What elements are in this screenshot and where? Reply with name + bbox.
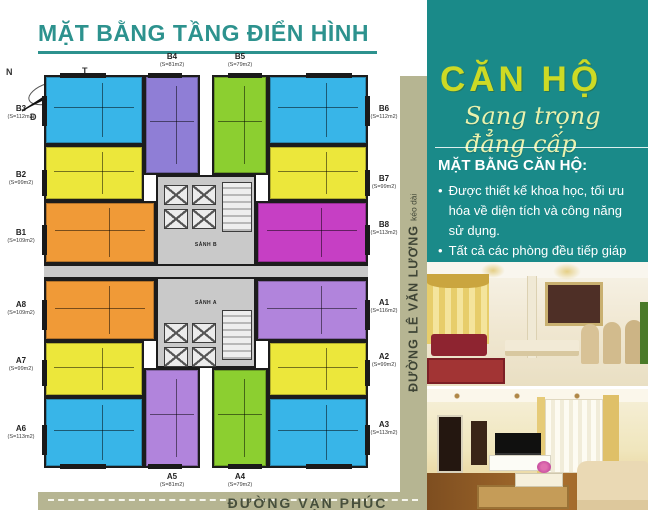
balcony-block [42, 225, 47, 255]
doorway [471, 421, 487, 465]
unit-B7 [268, 145, 368, 201]
red-rug [427, 358, 505, 384]
balcony-block [42, 300, 47, 330]
unit-label-B7: B7(S=99m2) [368, 174, 400, 191]
elevator-icon [192, 347, 216, 367]
unit-label-A2: A2(S=99m2) [368, 352, 400, 369]
elevator-icon [192, 185, 216, 205]
unit-label-B1: B1(S=109m2) [0, 228, 42, 245]
unit-A2 [268, 341, 368, 397]
unit-A8 [44, 279, 156, 341]
balcony-block [306, 73, 352, 78]
elevator-icon [164, 209, 188, 229]
balcony-block [60, 464, 106, 469]
balcony-block [42, 360, 47, 386]
unit-A3 [268, 397, 368, 468]
chandelier-icon [553, 263, 581, 280]
balcony-block [228, 464, 262, 469]
unit-label-B5: B5(S=79m2) [212, 52, 268, 69]
bullet-icon: • [438, 181, 443, 241]
panel-heading: CĂN HỘ [440, 60, 602, 100]
balcony-block [306, 464, 352, 469]
photo-dining-room [427, 262, 648, 386]
sofa [577, 461, 648, 510]
unit-label-B4: B4(S=81m2) [144, 52, 200, 69]
unit-B6 [268, 75, 368, 145]
unit-A5 [144, 368, 200, 468]
rug [477, 485, 569, 509]
lobby-b-label: SẢNH B [156, 242, 256, 248]
unit-label-B2: B2(S=99m2) [0, 170, 42, 187]
framed-artwork [545, 282, 603, 326]
unit-label-B6: B6(S=112m2) [368, 104, 400, 121]
plant [640, 302, 648, 364]
panel-tagline: Sang trọng đẳng cấp [465, 102, 648, 158]
unit-A7 [44, 341, 144, 397]
unit-label-A7: A7(S=99m2) [0, 356, 42, 373]
unit-A4 [212, 368, 268, 468]
svg-text:N: N [6, 67, 13, 77]
brochure-page: MẶT BẰNG TẦNG ĐIỂN HÌNH N T Đ B SẢNH B S… [0, 0, 648, 510]
balcony-block [148, 464, 182, 469]
unit-label-B8: B8(S=113m2) [368, 220, 400, 237]
unit-A6 [44, 397, 144, 468]
dining-table [505, 340, 579, 356]
panel-subheading: MẶT BẰNG CĂN HỘ: [438, 157, 587, 174]
balcony-block [42, 425, 47, 455]
unit-B8 [256, 201, 368, 264]
street-le-van-luong: ĐƯỜNG LÊ VĂN LƯƠNG kéo dài [400, 76, 427, 510]
doorway [437, 415, 463, 473]
curtain-valance [427, 274, 489, 288]
unit-B5 [212, 75, 268, 175]
coffee-table [515, 473, 563, 487]
unit-label-A6: A6(S=113m2) [0, 424, 42, 441]
unit-label-B3: B3(S=112m2) [0, 104, 42, 121]
balcony-block [228, 73, 262, 78]
stairs-icon [222, 182, 252, 232]
elevator-icon [164, 347, 188, 367]
bullet-text: Được thiết kế khoa học, tối ưu hóa về di… [449, 181, 640, 241]
unit-B4 [144, 75, 200, 175]
balcony-block [42, 170, 47, 196]
dining-chair [581, 324, 599, 364]
unit-B2 [44, 145, 144, 201]
balcony-block [60, 73, 106, 78]
elevator-icon [192, 323, 216, 343]
page-title: MẶT BẰNG TẦNG ĐIỂN HÌNH [38, 20, 377, 54]
unit-label-A1: A1(S=116m2) [368, 298, 400, 315]
tv-screen [495, 433, 541, 455]
lobby-a-label: SẢNH A [156, 300, 256, 306]
photo-living-room [427, 389, 648, 510]
flowers [537, 461, 551, 473]
corridor [44, 264, 368, 279]
unit-label-A8: A8(S=109m2) [0, 300, 42, 317]
unit-A1 [256, 279, 368, 341]
street-le-van-luong-label: ĐƯỜNG LÊ VĂN LƯƠNG kéo dài [400, 76, 427, 510]
unit-B3 [44, 75, 144, 145]
stairs-icon [222, 310, 252, 360]
elevator-icon [164, 185, 188, 205]
balcony-block [148, 73, 182, 78]
elevator-icon [164, 323, 188, 343]
unit-label-A5: A5(S=81m2) [144, 472, 200, 489]
panel-divider [435, 147, 648, 148]
street-van-phuc-label: ĐƯỜNG VẠN PHÚC [190, 495, 425, 510]
bullet-item: • Được thiết kế khoa học, tối ưu hóa về … [438, 181, 640, 241]
dining-chair [603, 322, 621, 364]
red-daybed [431, 334, 487, 356]
elevator-icon [192, 209, 216, 229]
unit-label-A3: A3(S=113m2) [368, 420, 400, 437]
balcony-block [42, 96, 47, 126]
unit-B1 [44, 201, 156, 264]
unit-label-A4: A4(S=79m2) [212, 472, 268, 489]
